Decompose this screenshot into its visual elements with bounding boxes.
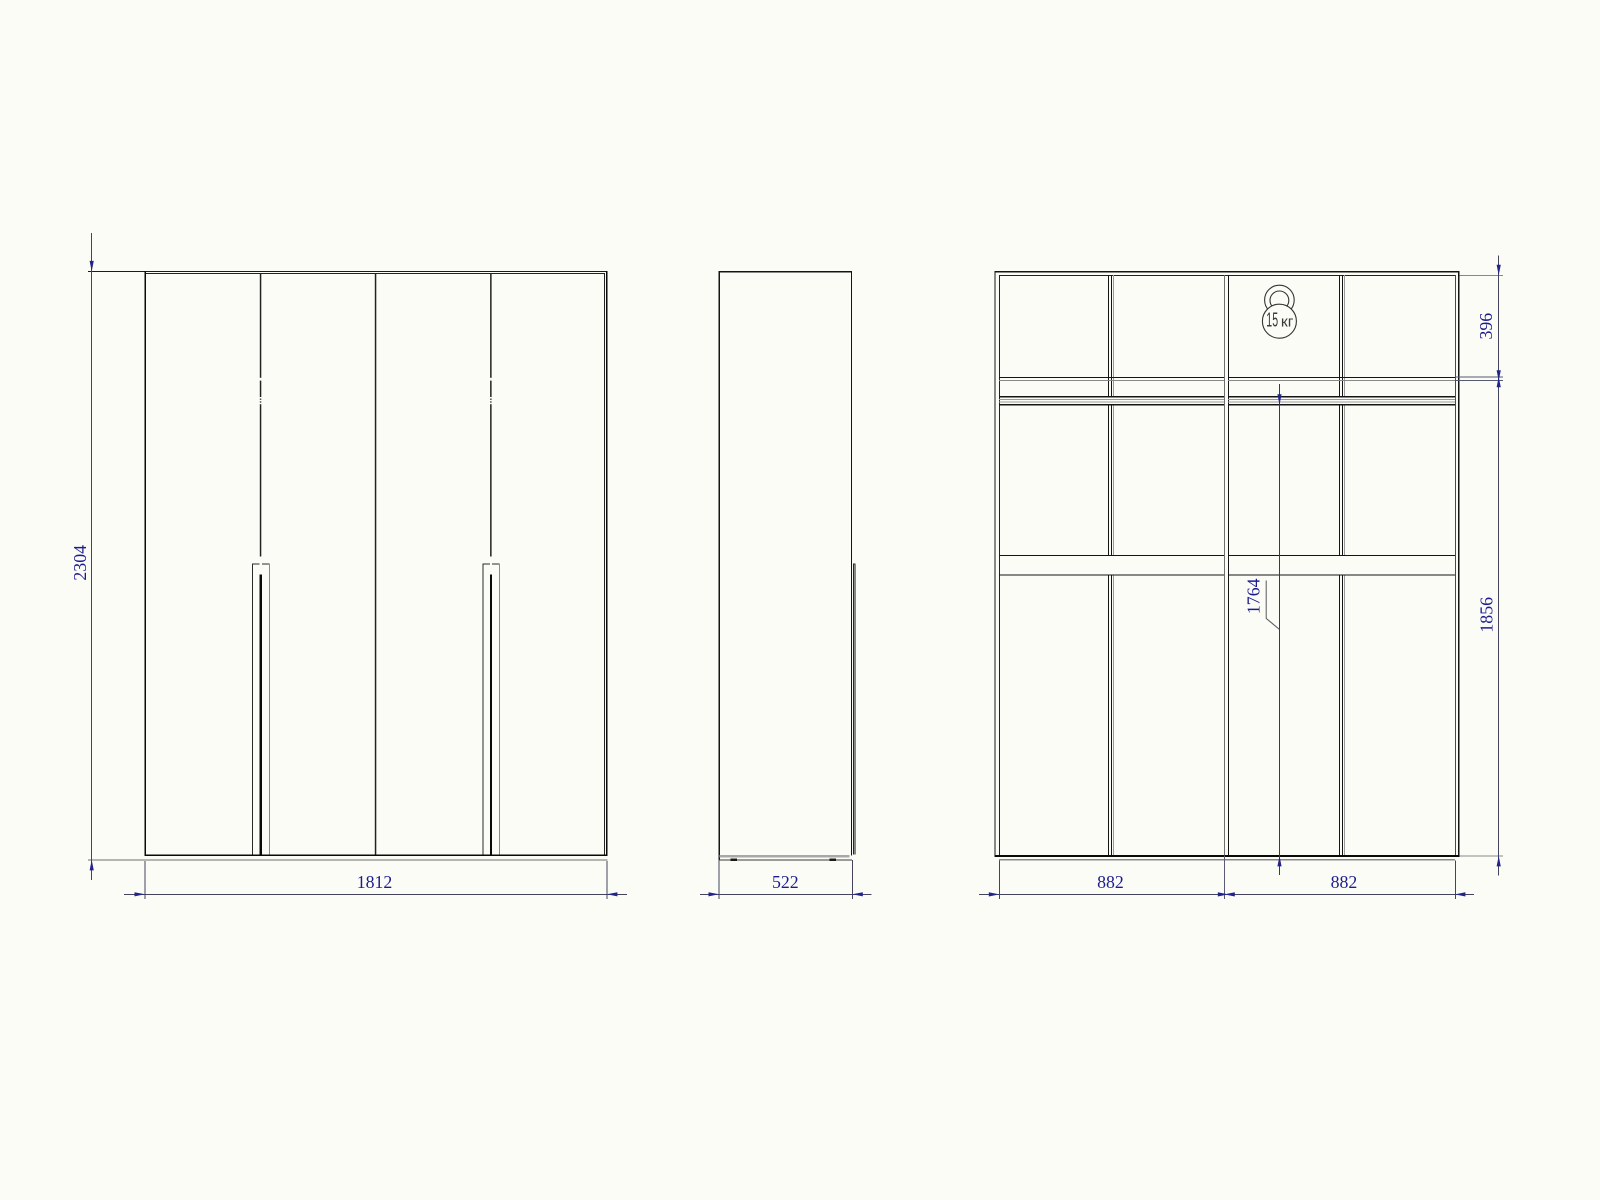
svg-text:1856: 1856: [1476, 597, 1496, 633]
svg-text:396: 396: [1476, 313, 1496, 340]
svg-text:2304: 2304: [70, 545, 90, 581]
svg-text:1812: 1812: [357, 872, 393, 892]
svg-text:кг: кг: [1281, 314, 1294, 331]
svg-text:882: 882: [1097, 872, 1124, 892]
svg-text:882: 882: [1331, 872, 1358, 892]
svg-text:15: 15: [1266, 310, 1278, 332]
svg-text:1764: 1764: [1244, 578, 1264, 614]
svg-text:522: 522: [772, 872, 799, 892]
